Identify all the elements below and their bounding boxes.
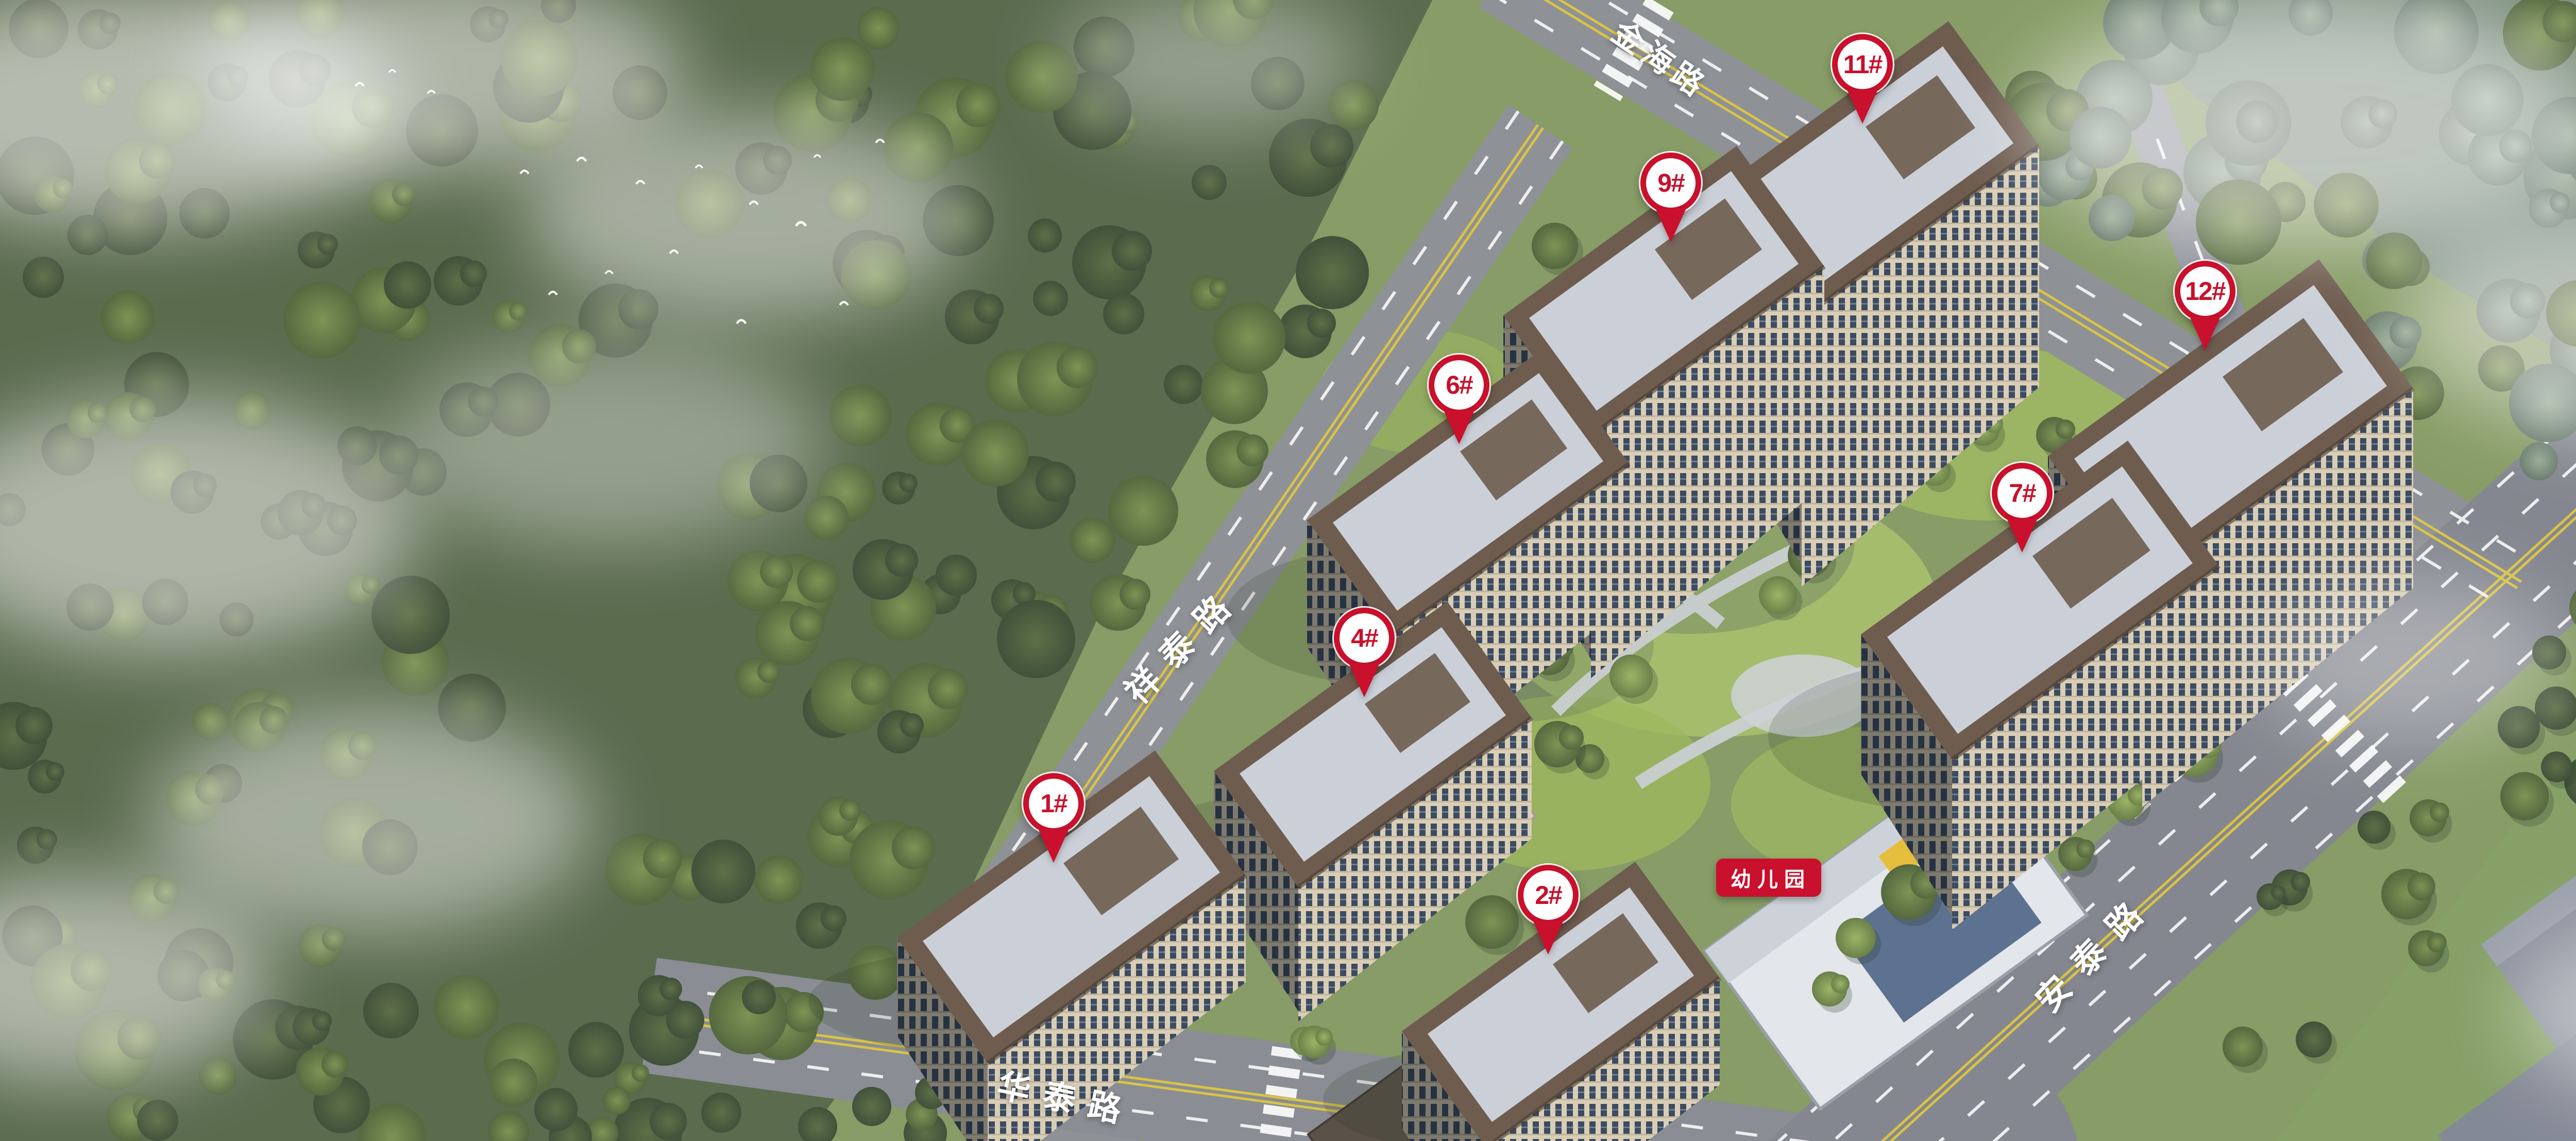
aerial-masterplan-rendering: 11# 9# 12# 6# 7# 4# 1# 2# 金海路 祥泰路 安泰路 华泰… — [0, 0, 2576, 1141]
scene-rendering — [0, 0, 2576, 1141]
kindergarten-badge: 幼儿园 — [1716, 859, 1821, 897]
